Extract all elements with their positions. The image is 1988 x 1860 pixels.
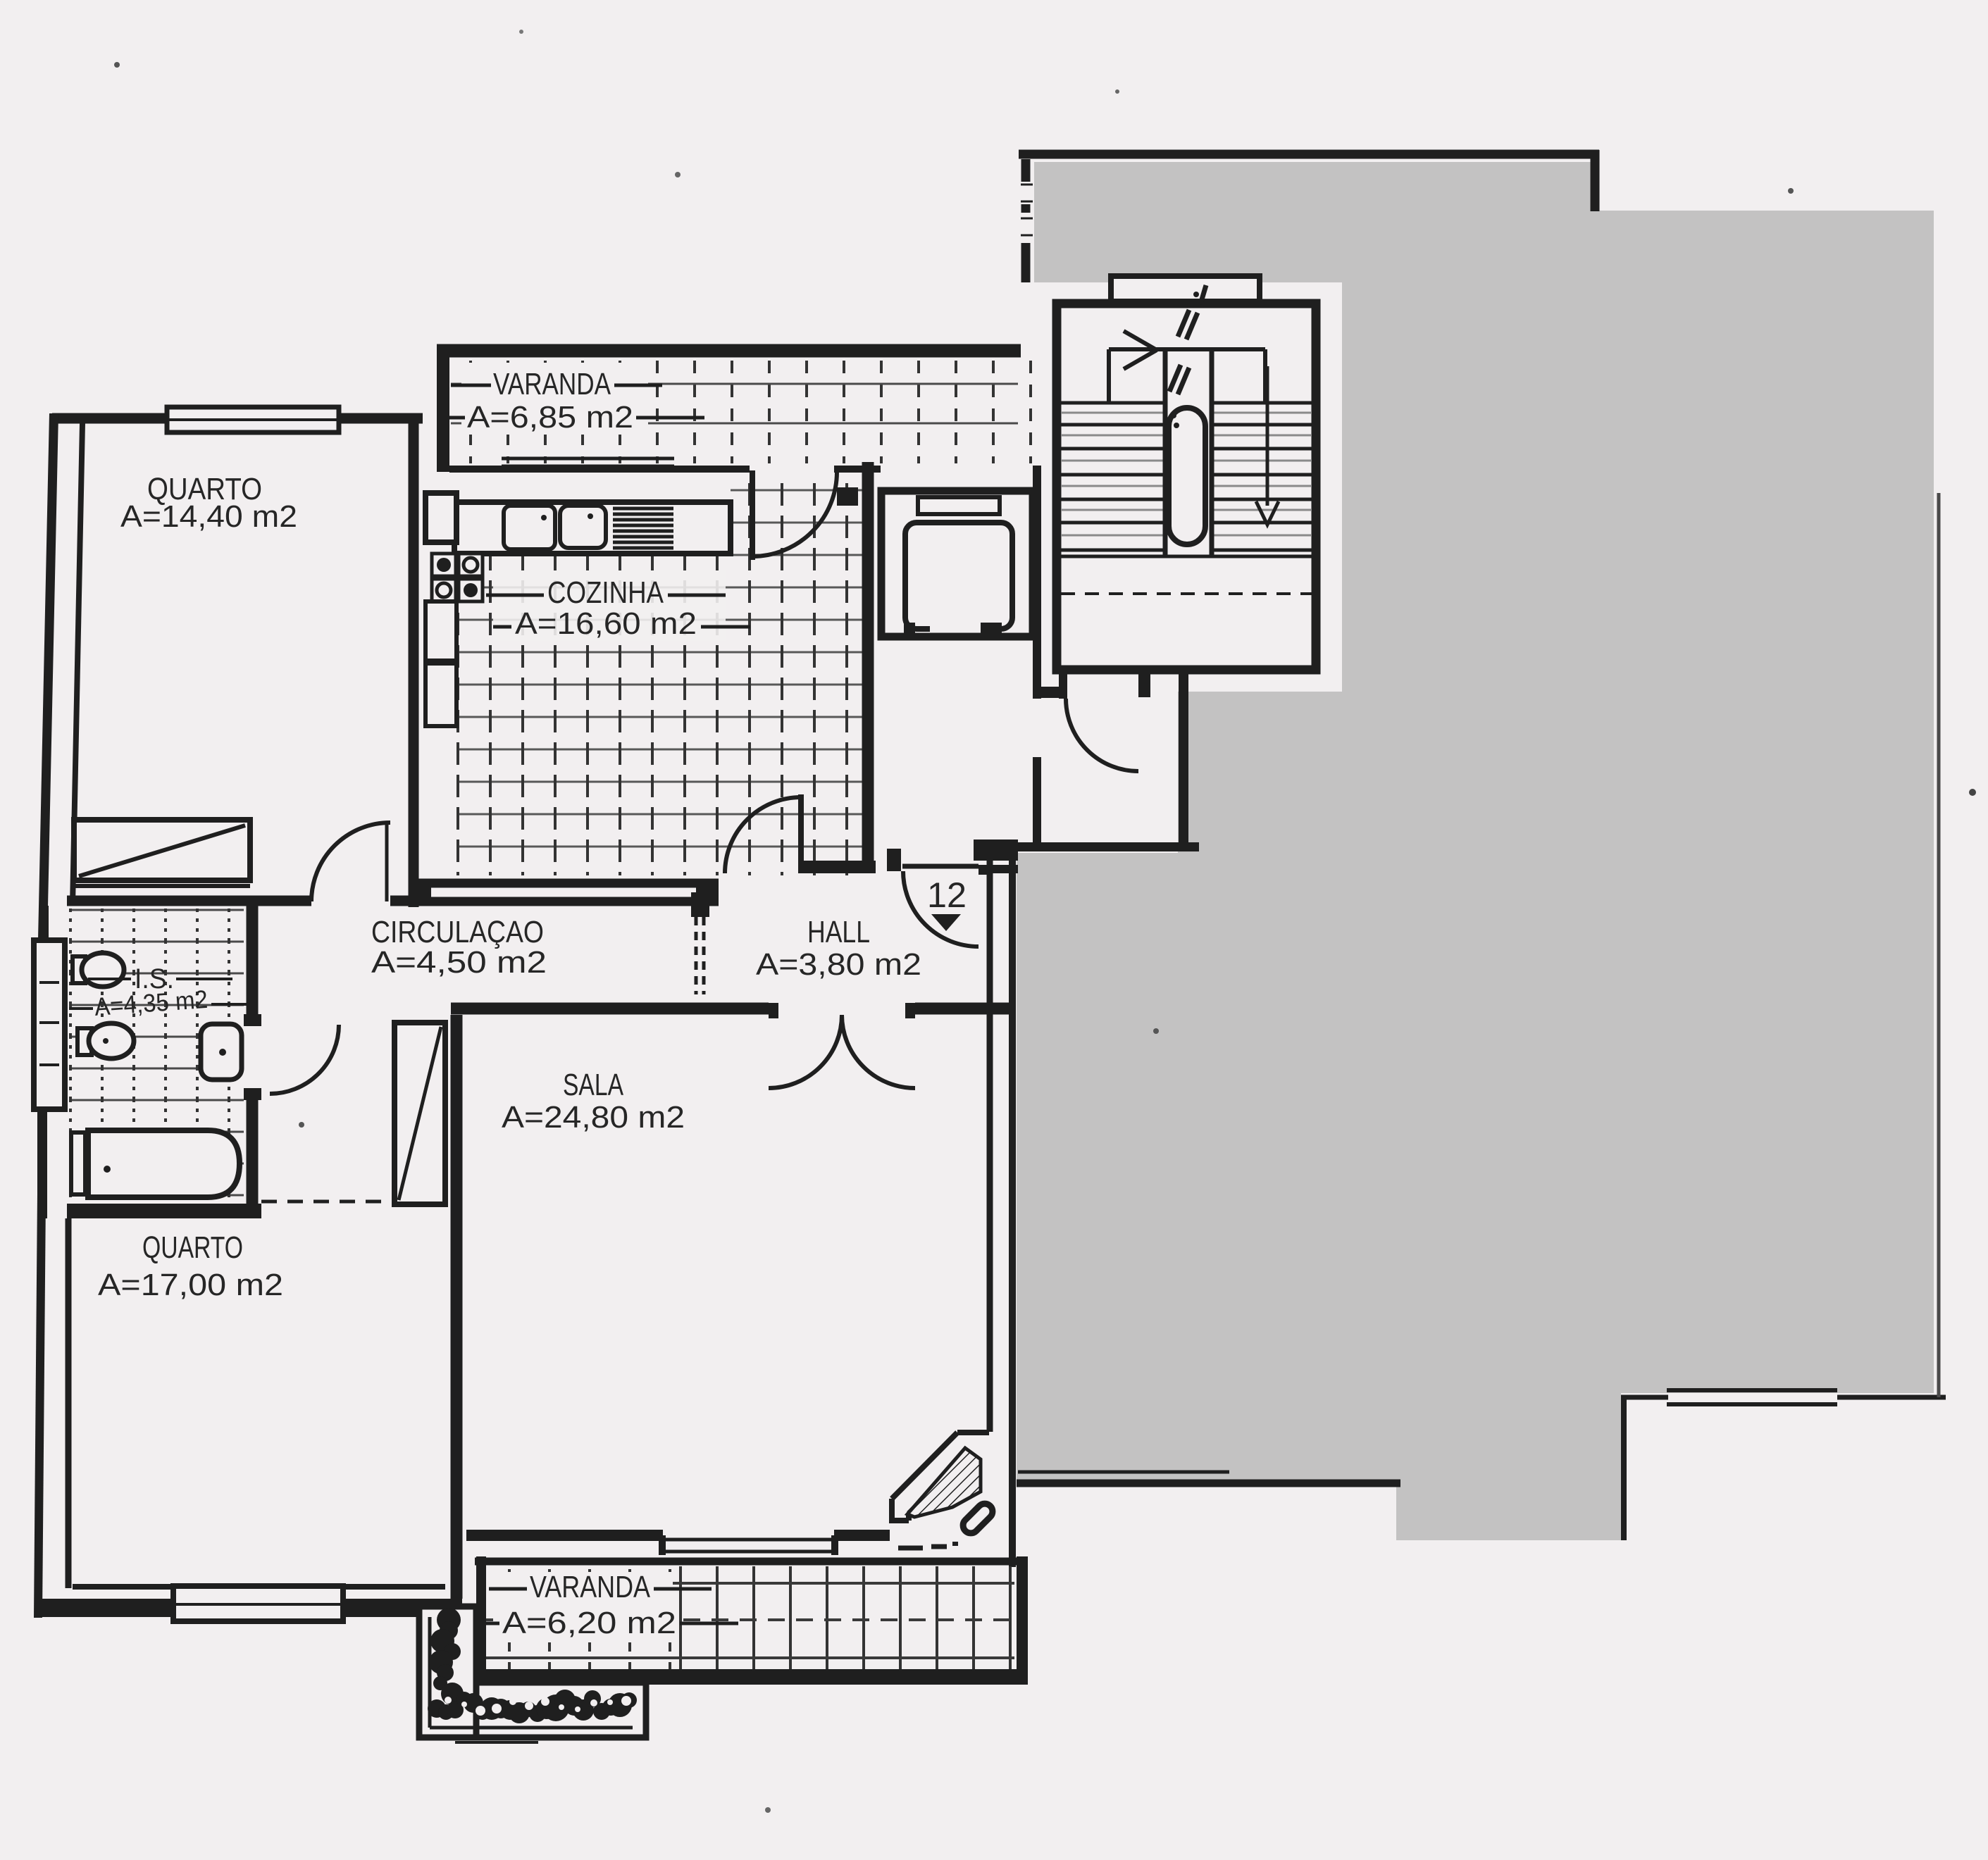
svg-text:COZINHA: COZINHA [547,575,664,610]
svg-text:A=24,80 m2: A=24,80 m2 [502,1100,685,1135]
svg-text:A=17,00 m2: A=17,00 m2 [98,1268,283,1302]
svg-text:CIRCULAÇAO: CIRCULAÇAO [371,915,544,949]
svg-text:QUARTO: QUARTO [142,1230,243,1265]
svg-text:A=14,40 m2: A=14,40 m2 [120,499,297,534]
svg-text:A=4,50 m2: A=4,50 m2 [371,945,547,980]
svg-text:A=16,60 m2: A=16,60 m2 [515,606,697,641]
svg-text:A=3,80 m2: A=3,80 m2 [756,947,921,982]
svg-text:HALL: HALL [807,915,870,949]
svg-text:VARANDA: VARANDA [530,1570,651,1604]
svg-text:A=6,20 m2: A=6,20 m2 [502,1606,676,1640]
svg-text:A=6,85 m2: A=6,85 m2 [467,400,633,435]
svg-text:VARANDA: VARANDA [493,367,611,401]
svg-text:SALA: SALA [563,1068,623,1102]
svg-text:12: 12 [927,875,967,915]
